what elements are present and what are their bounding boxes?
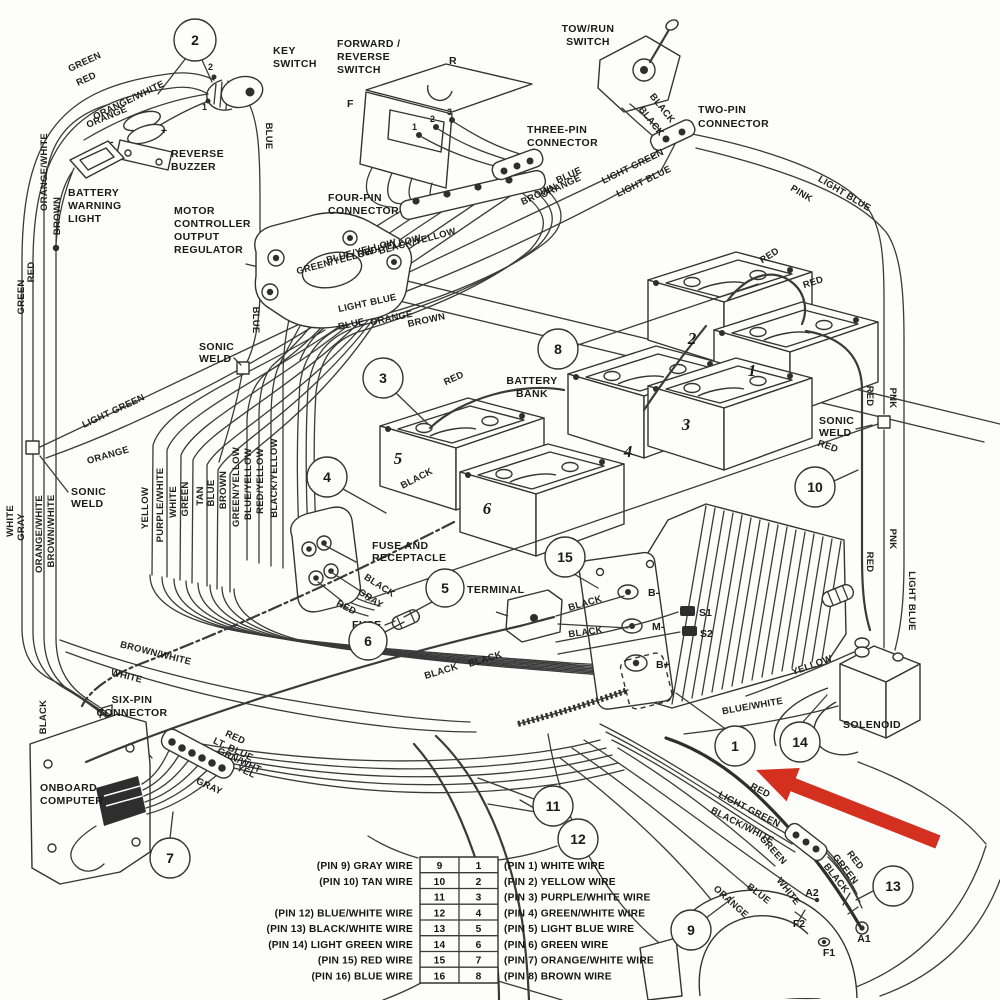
motor-f2: F2 <box>793 918 805 930</box>
battery-warning-light-label: BATTERY <box>68 187 119 199</box>
key-switch[interactable] <box>206 72 267 112</box>
wire-label: RED <box>864 386 875 407</box>
wire-label: WHITE <box>110 667 144 685</box>
callout-15[interactable]: 15 <box>545 537 585 577</box>
callout-4[interactable]: 4 <box>307 457 347 497</box>
fuse-receptacle-label: FUSE AND <box>372 540 428 552</box>
pin-row-right-num: 2 <box>476 877 482 888</box>
wire-label: BLUE/YELLOW <box>243 448 254 520</box>
fr-switch-r: R <box>449 55 457 67</box>
wire-label: ORANGE/WHITE <box>39 133 50 211</box>
controller-b-plus: B+ <box>656 659 670 671</box>
wire-label: WHITE <box>168 486 179 518</box>
wire-label: LIGHT BLUE <box>906 571 917 631</box>
wire-label: GREEN <box>67 50 103 75</box>
battery-number-5: 5 <box>394 449 403 468</box>
svg-text:8: 8 <box>554 341 562 357</box>
pin-row-left-label: (PIN 9) GRAY WIRE <box>317 861 413 872</box>
reverse-buzzer-label: BUZZER <box>171 161 216 173</box>
sonic-weld-label: WELD <box>71 498 104 510</box>
four-pin-label: CONNECTOR <box>328 205 399 217</box>
pin-row-right-num: 1 <box>476 861 482 872</box>
pin-row-left-num: 16 <box>434 971 446 982</box>
callout-6[interactable]: 6 <box>349 622 387 660</box>
wire-label: GREEN <box>16 279 27 314</box>
callout-11[interactable]: 11 <box>533 786 573 826</box>
pin-row-left-num: 15 <box>434 956 446 967</box>
wire-label: RED/YELLOW <box>255 448 266 514</box>
svg-text:13: 13 <box>885 878 901 894</box>
pin-row-right-num: 7 <box>476 956 482 967</box>
wire-label: TAN <box>195 486 206 506</box>
sonic-weld-box-right <box>878 416 890 428</box>
wire-label: BLUE/WHITE <box>721 696 784 718</box>
regulator-label: MOTOR <box>174 205 215 217</box>
svg-text:10: 10 <box>807 479 823 495</box>
six-pin-label: SIX-PIN <box>112 694 153 706</box>
wire-label: BLACK <box>38 700 49 735</box>
reverse-buzzer-label: REVERSE <box>171 148 224 160</box>
motor-a1: A1 <box>857 933 871 945</box>
pin-row-right-label: (PIN 2) YELLOW WIRE <box>504 877 616 888</box>
solenoid-label: SOLENOID <box>843 719 901 731</box>
diagram-canvas: (PIN 9) GRAY WIRE 9 1 (PIN 1) WHITE WIRE… <box>0 0 1000 1000</box>
pin-row-left-label: (PIN 15) RED WIRE <box>318 956 413 967</box>
terminal-block[interactable] <box>496 590 562 642</box>
svg-text:11: 11 <box>546 798 561 814</box>
six-pin-label: CONNECTOR <box>96 707 167 719</box>
reverse-buzzer[interactable] <box>116 108 172 170</box>
svg-text:7: 7 <box>166 850 174 866</box>
two-pin-label: CONNECTOR <box>698 118 769 130</box>
pin-row-left-label: (PIN 13) BLACK/WHITE WIRE <box>267 924 414 935</box>
wire-label: WHITE <box>5 505 16 537</box>
pin-row-right-num: 5 <box>476 924 482 935</box>
wire-label: RED <box>442 369 466 388</box>
key-switch-label: KEY <box>273 45 296 57</box>
wiring-diagram: (PIN 9) GRAY WIRE 9 1 (PIN 1) WHITE WIRE… <box>0 0 1000 1000</box>
onboard-computer-label: ONBOARD <box>40 782 97 794</box>
callout-3[interactable]: 3 <box>363 358 403 398</box>
sonic-weld-label: SONIC <box>199 341 234 353</box>
callout-12[interactable]: 12 <box>558 819 598 859</box>
motor-controller[interactable] <box>578 504 846 711</box>
wire-label: PURPLE/WHITE <box>155 468 166 543</box>
onboard-computer-label: COMPUTER <box>40 795 103 807</box>
wire-label: BLACK/YELLOW <box>269 438 280 518</box>
svg-text:12: 12 <box>570 831 586 847</box>
battery-number-1: 1 <box>748 361 757 380</box>
callout-7[interactable]: 7 <box>150 838 190 878</box>
wire-label: GREEN <box>180 481 191 516</box>
regulator-label: REGULATOR <box>174 244 243 256</box>
pin-row-left-num: 10 <box>434 877 446 888</box>
fr-pin-3: 3 <box>447 107 452 117</box>
four-pin-label: FOUR-PIN <box>328 192 382 204</box>
controller-s1: S1 <box>699 607 712 619</box>
fr-pin-1: 1 <box>412 122 417 132</box>
wire-label: PNK <box>887 529 898 550</box>
forward-reverse-label: FORWARD / <box>337 38 401 50</box>
motor-controller-output-regulator[interactable] <box>255 213 412 328</box>
red-annotation-arrow <box>756 768 941 849</box>
callout-13[interactable]: 13 <box>873 866 913 906</box>
battery-bank-label: BANK <box>516 388 548 400</box>
wire-label: YELLOW <box>140 487 151 529</box>
callout-9[interactable]: 9 <box>671 910 711 950</box>
sonic-weld-box-mid <box>237 362 249 374</box>
fuse-receptacle-label: RECEPTACLE <box>372 552 446 564</box>
pin-row-right-num: 8 <box>476 971 482 982</box>
pin-row-right-label: (PIN 8) BROWN WIRE <box>504 971 612 982</box>
battery-warning-light[interactable] <box>70 141 124 178</box>
wire-label: BROWN <box>218 471 229 509</box>
wire-label: BROWN/WHITE <box>46 495 57 568</box>
pin-row-left-label: (PIN 14) LIGHT GREEN WIRE <box>268 940 413 951</box>
motor[interactable] <box>640 890 857 1000</box>
motor-a2: A2 <box>805 887 819 899</box>
wire-label: BLACK <box>423 661 459 682</box>
svg-text:9: 9 <box>687 922 695 938</box>
regulator-label: CONTROLLER <box>174 218 251 230</box>
svg-text:15: 15 <box>557 549 573 565</box>
three-pin-label: THREE-PIN <box>527 124 587 136</box>
wire-label: RED <box>26 262 37 283</box>
terminal-label: TERMINAL <box>467 584 525 596</box>
pin-row-right-num: 6 <box>476 940 482 951</box>
fuse[interactable] <box>390 608 421 631</box>
pin-row-right-label: (PIN 5) LIGHT BLUE WIRE <box>504 924 634 935</box>
svg-text:6: 6 <box>364 633 372 649</box>
buzzer-minus: - <box>110 136 114 148</box>
pin-row-right-label: (PIN 7) ORANGE/WHITE WIRE <box>504 956 654 967</box>
fr-switch-f: F <box>347 98 354 110</box>
pin-row-left-label: (PIN 10) TAN WIRE <box>319 877 413 888</box>
wire-label: GRAY <box>194 776 224 798</box>
pin-row-right-label: (PIN 1) WHITE WIRE <box>504 861 605 872</box>
sonic-weld-label: SONIC <box>71 486 106 498</box>
controller-b-minus: B- <box>648 587 660 599</box>
callout-10[interactable]: 10 <box>795 467 835 507</box>
controller-m-minus: M- <box>652 621 665 633</box>
pin-row-left-label: (PIN 16) BLUE WIRE <box>311 971 413 982</box>
wire-label: GREEN/YELLOW <box>231 447 242 527</box>
tow-run-label: TOW/RUN <box>562 23 615 35</box>
buzzer-plus: + <box>161 125 167 137</box>
battery-number-3: 3 <box>681 415 691 434</box>
pin-table: (PIN 9) GRAY WIRE 9 1 (PIN 1) WHITE WIRE… <box>267 836 654 1000</box>
battery-warning-light-label: WARNING <box>68 200 122 212</box>
controller-s2: S2 <box>700 628 713 640</box>
wire-label: BROWN <box>52 197 63 235</box>
svg-text:2: 2 <box>191 32 199 48</box>
key-switch-label: SWITCH <box>273 58 317 70</box>
wire-label: LIGHT BLUE <box>816 174 873 214</box>
sonic-weld-label: WELD <box>199 353 232 365</box>
wire-label: LIGHT GREEN <box>81 392 147 431</box>
battery-warning-light-label: LIGHT <box>68 213 102 225</box>
wire-label: PNK <box>887 388 898 409</box>
motor-f1: F1 <box>823 947 835 959</box>
pin-row-left-num: 13 <box>434 924 446 935</box>
three-pin-label: CONNECTOR <box>527 137 598 149</box>
sonic-weld-label: WELD <box>819 427 852 439</box>
callout-2[interactable]: 2 <box>174 19 216 61</box>
svg-text:4: 4 <box>323 469 331 485</box>
wire-label: ORANGE <box>86 444 131 466</box>
key-pin-2: 2 <box>208 62 213 72</box>
wire-label: PINK <box>788 183 814 205</box>
pin-row-right-num: 4 <box>476 908 482 919</box>
wire-label: RED <box>864 552 875 573</box>
svg-text:3: 3 <box>379 370 387 386</box>
wire-label: RED <box>75 70 99 89</box>
sonic-weld-box-left <box>26 441 39 454</box>
forward-reverse-label: REVERSE <box>337 51 390 63</box>
forward-reverse-label: SWITCH <box>337 64 381 76</box>
pin-row-right-num: 3 <box>476 893 482 904</box>
wire-label: BLUE <box>206 480 217 507</box>
regulator-label: OUTPUT <box>174 231 220 243</box>
fr-pin-2: 2 <box>430 114 435 124</box>
svg-text:14: 14 <box>792 734 808 750</box>
callout-5[interactable]: 5 <box>426 569 464 607</box>
callout-14[interactable]: 14 <box>780 722 820 762</box>
pin-row-left-label: (PIN 12) BLUE/WHITE WIRE <box>275 908 413 919</box>
pin-row-left-num: 12 <box>434 908 446 919</box>
sonic-weld-label: SONIC <box>819 415 854 427</box>
callout-1[interactable]: 1 <box>715 726 755 766</box>
svg-text:5: 5 <box>441 580 449 596</box>
key-pin-1: 1 <box>202 102 207 112</box>
wire-label: BLUE <box>250 307 261 334</box>
tow-run-label: SWITCH <box>566 36 610 48</box>
battery-number-6: 6 <box>483 499 492 518</box>
pin-row-left-num: 11 <box>434 893 445 904</box>
pin-row-left-num: 14 <box>434 940 446 951</box>
svg-text:1: 1 <box>731 738 739 754</box>
battery-number-4: 4 <box>623 442 633 461</box>
battery-bank-label: BATTERY <box>506 375 557 387</box>
wire-label: BLUE <box>263 123 274 150</box>
pin-row-right-label: (PIN 3) PURPLE/WHITE WIRE <box>504 893 651 904</box>
two-pin-label: TWO-PIN <box>698 104 746 116</box>
wire-label: GRAY <box>16 513 27 541</box>
battery-number-2: 2 <box>687 329 697 348</box>
callout-8[interactable]: 8 <box>538 329 578 369</box>
pin-row-left-num: 9 <box>437 861 443 872</box>
wire-label: RED <box>816 438 839 455</box>
pin-row-right-label: (PIN 4) GREEN/WHITE WIRE <box>504 908 645 919</box>
pin-row-right-label: (PIN 6) GREEN WIRE <box>504 940 608 951</box>
wire-label: ORANGE/WHITE <box>34 495 45 573</box>
